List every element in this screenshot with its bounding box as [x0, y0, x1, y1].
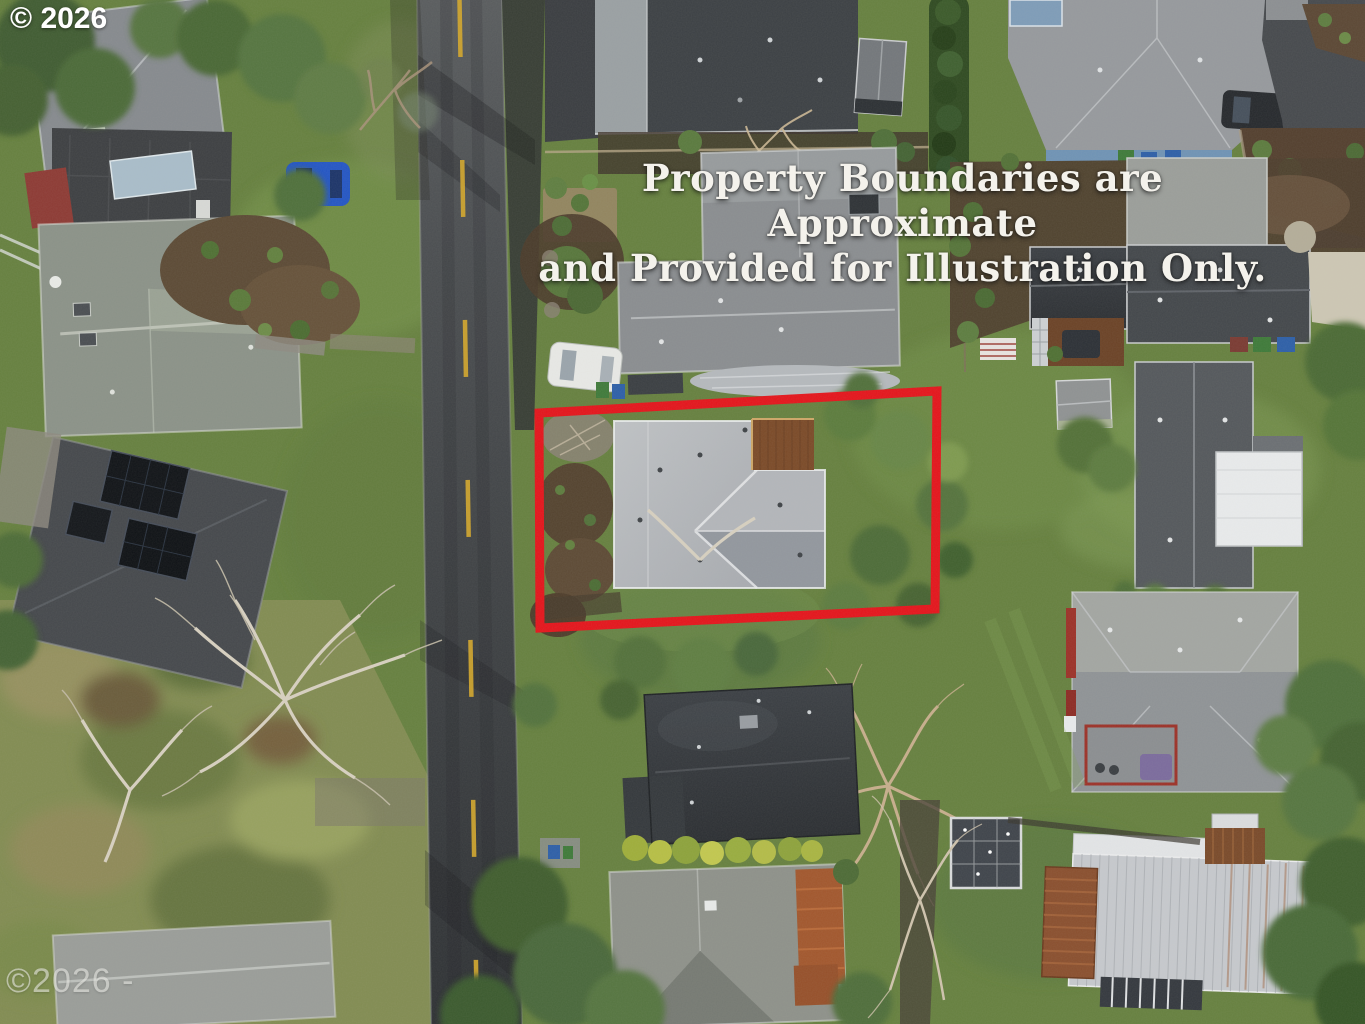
copyright-watermark-bottom: ©2026 - — [6, 962, 134, 1001]
copyright-watermark-top: © 2026 — [10, 2, 107, 36]
aerial-photo: Property Boundaries are Approximate and … — [0, 0, 1365, 1024]
aerial-scene — [0, 0, 1365, 1024]
photo-grain — [0, 0, 1365, 1024]
disclaimer-text: Property Boundaries are Approximate and … — [515, 156, 1290, 291]
disclaimer-line1: Property Boundaries are Approximate — [515, 156, 1290, 246]
disclaimer-line2: and Provided for Illustration Only. — [515, 246, 1290, 291]
